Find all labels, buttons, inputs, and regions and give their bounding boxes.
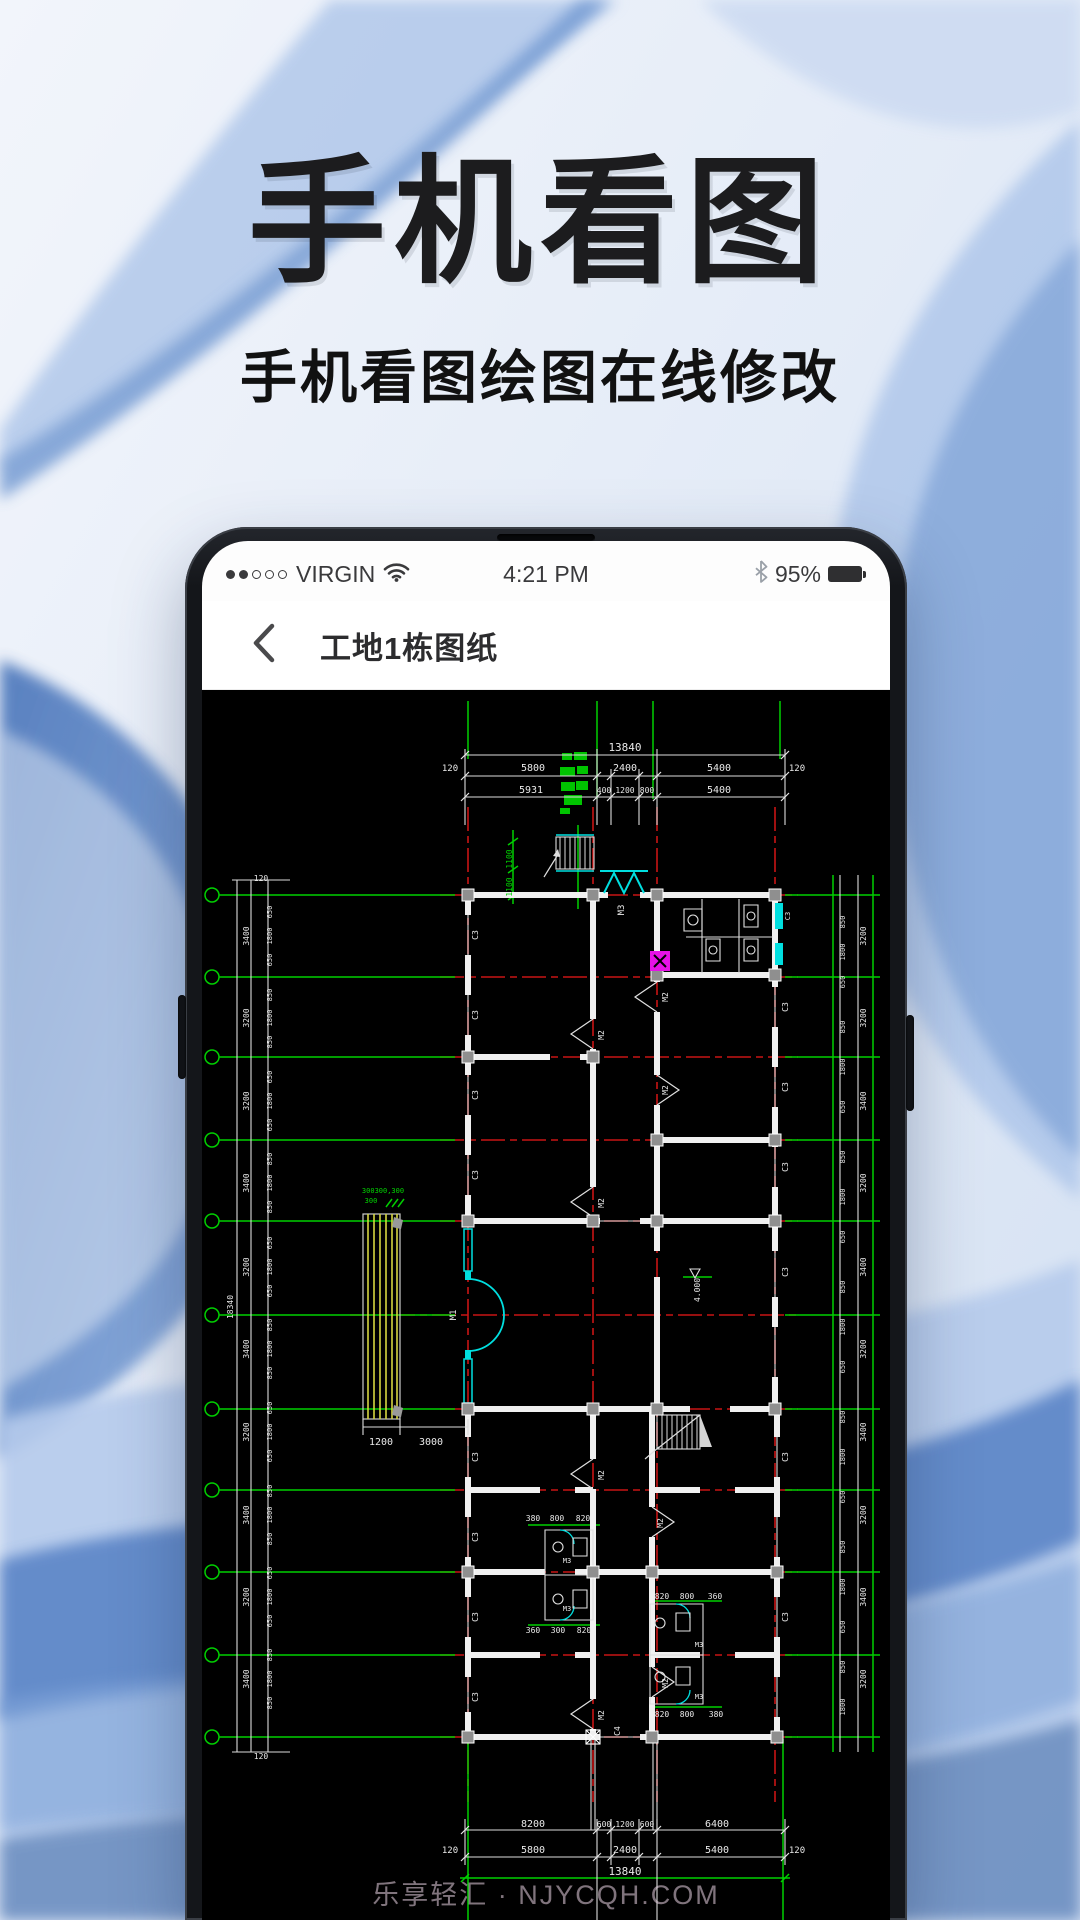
svg-text:650: 650 [266,1119,274,1132]
svg-text:3200: 3200 [242,1422,251,1441]
svg-text:850: 850 [839,1281,847,1294]
page-title: 手机看图 [0,110,1080,310]
svg-text:1200: 1200 [615,1820,634,1829]
svg-text:M2: M2 [597,1470,606,1480]
svg-text:1200: 1200 [369,1437,393,1448]
svg-text:300: 300 [551,1626,566,1635]
svg-text:M3: M3 [617,905,627,916]
svg-text:650: 650 [266,1402,274,1415]
svg-text:C3: C3 [781,1612,790,1622]
svg-text:1800: 1800 [266,1175,274,1192]
svg-text:650: 650 [266,1450,274,1463]
phone-power-button [906,1015,914,1111]
svg-text:1100: 1100 [505,877,514,896]
svg-text:120: 120 [442,1846,458,1856]
svg-text:M1: M1 [449,1310,459,1321]
svg-text:850: 850 [839,916,847,929]
svg-text:3200: 3200 [859,1339,868,1358]
svg-text:3200: 3200 [859,1505,868,1524]
axis-grid-red [350,807,798,1802]
back-chevron-icon [252,623,276,668]
svg-text:120: 120 [442,764,458,774]
svg-text:850: 850 [266,1367,274,1380]
svg-text:600: 600 [640,1820,655,1829]
svg-text:3200: 3200 [242,1257,251,1276]
svg-text:360: 360 [526,1626,541,1635]
svg-text:850: 850 [839,1151,847,1164]
svg-text:650: 650 [839,1621,847,1634]
back-button[interactable] [242,623,286,667]
svg-text:120: 120 [254,1752,269,1761]
svg-text:3400: 3400 [859,1257,868,1276]
svg-text:C3: C3 [784,912,792,920]
svg-text:5800: 5800 [521,763,545,774]
svg-text:1800: 1800 [266,1010,274,1027]
svg-text:1200: 1200 [615,786,634,795]
svg-text:850: 850 [266,1649,274,1662]
svg-text:120: 120 [789,764,805,774]
svg-text:M2: M2 [597,1710,606,1720]
svg-text:850: 850 [266,1697,274,1710]
svg-text:2400: 2400 [613,763,637,774]
svg-text:C3: C3 [781,1162,790,1172]
svg-text:850: 850 [266,1036,274,1049]
svg-text:650: 650 [266,1237,274,1250]
svg-text:850: 850 [839,1661,847,1674]
svg-text:820: 820 [576,1514,591,1523]
svg-text:M2: M2 [597,1030,606,1040]
svg-text:3400: 3400 [242,1669,251,1688]
svg-text:800: 800 [550,1514,565,1523]
cad-viewer-canvas[interactable]: 1384012058002400540012059314001200800540… [202,690,890,1920]
svg-text:3000: 3000 [419,1437,443,1448]
svg-text:650: 650 [266,906,274,919]
svg-text:850: 850 [839,1541,847,1554]
svg-text:850: 850 [266,1201,274,1214]
svg-text:1800: 1800 [266,1259,274,1276]
svg-text:3200: 3200 [859,1008,868,1027]
svg-text:800: 800 [640,786,655,795]
green-annotation-blocks [560,752,588,814]
svg-text:5800: 5800 [521,1845,545,1856]
svg-text:3200: 3200 [242,1008,251,1027]
stairs-upper [544,835,594,877]
svg-text:13840: 13840 [608,741,641,754]
svg-text:800: 800 [680,1592,695,1601]
svg-text:650: 650 [266,1567,274,1580]
columns [462,889,783,1743]
magenta-symbol [650,951,670,971]
svg-text:M2: M2 [661,1678,670,1688]
svg-text:C3: C3 [471,1692,480,1702]
svg-text:850: 850 [266,1153,274,1166]
battery-icon [828,566,866,582]
svg-text:3400: 3400 [242,1173,251,1192]
svg-text:820: 820 [577,1626,592,1635]
svg-text:4.000: 4.000 [693,1278,702,1302]
svg-text:1800: 1800 [266,928,274,945]
svg-text:1800: 1800 [839,1189,847,1206]
svg-text:380: 380 [709,1710,724,1719]
svg-text:1100: 1100 [505,849,514,868]
battery-percent-label: 95% [775,561,821,588]
cad-dimension-texts: 1384012058002400540012059314001200800540… [226,741,868,1878]
svg-text:1800: 1800 [839,1449,847,1466]
dimension-ticks [461,751,789,1861]
svg-text:3200: 3200 [859,1173,868,1192]
svg-text:1800: 1800 [266,1341,274,1358]
svg-text:8200: 8200 [521,1819,545,1830]
svg-text:1800: 1800 [266,1093,274,1110]
svg-text:M3: M3 [695,1693,703,1701]
svg-text:M2: M2 [656,1518,665,1528]
svg-text:C4: C4 [613,1726,622,1736]
svg-text:5400: 5400 [705,1845,729,1856]
svg-text:3200: 3200 [242,1091,251,1110]
svg-text:C3: C3 [781,1267,790,1277]
svg-text:C3: C3 [781,1452,790,1462]
svg-text:1800: 1800 [266,1589,274,1606]
svg-text:5400: 5400 [707,785,731,796]
svg-text:1800: 1800 [839,1579,847,1596]
phone-mockup: VIRGIN 4:21 PM 95% [185,527,907,1920]
svg-text:C3: C3 [471,1170,480,1180]
svg-text:C3: C3 [471,1532,480,1542]
svg-text:M2: M2 [661,1085,670,1095]
svg-text:M3: M3 [563,1557,571,1565]
phone-screen: VIRGIN 4:21 PM 95% [202,541,890,1920]
svg-text:850: 850 [266,1533,274,1546]
svg-text:300: 300 [365,1197,378,1205]
svg-text:5931: 5931 [519,785,543,796]
svg-text:3200: 3200 [859,1669,868,1688]
svg-text:850: 850 [839,1411,847,1424]
svg-text:5400: 5400 [707,763,731,774]
phone-volume-button [178,995,186,1079]
svg-text:3400: 3400 [242,1339,251,1358]
svg-text:6400: 6400 [705,1819,729,1830]
svg-text:800: 800 [680,1710,695,1719]
svg-text:18340: 18340 [226,1295,235,1319]
svg-text:C3: C3 [781,1002,790,1012]
svg-text:650: 650 [839,1491,847,1504]
svg-text:850: 850 [266,1319,274,1332]
svg-text:3200: 3200 [859,926,868,945]
drawing-title: 工地1栋图纸 [320,623,498,668]
status-bar: VIRGIN 4:21 PM 95% [202,541,890,601]
svg-text:1800: 1800 [266,1671,274,1688]
svg-text:C3: C3 [471,1010,480,1020]
svg-text:3400: 3400 [859,1587,868,1606]
ramp-hatch [363,1214,403,1419]
watermark: 乐享轻汇 · NJYCQH.COM [202,1873,890,1912]
svg-text:3400: 3400 [242,1505,251,1524]
cad-svg: 1384012058002400540012059314001200800540… [202,690,890,1920]
svg-text:820: 820 [655,1592,670,1601]
svg-text:M3: M3 [695,1641,703,1649]
svg-text:650: 650 [839,1101,847,1114]
svg-text:650: 650 [839,1231,847,1244]
svg-text:2400: 2400 [613,1845,637,1856]
svg-text:1800: 1800 [839,1319,847,1336]
svg-text:850: 850 [839,1021,847,1034]
svg-text:650: 650 [266,1615,274,1628]
svg-text:M3: M3 [563,1605,571,1613]
svg-text:1800: 1800 [839,1059,847,1076]
page-subtitle: 手机看图绘图在线修改 [0,332,1080,414]
walls [468,895,777,1739]
svg-text:600: 600 [597,1820,612,1829]
svg-text:400: 400 [597,786,612,795]
svg-text:C3: C3 [471,1612,480,1622]
svg-text:1800: 1800 [266,1507,274,1524]
svg-text:650: 650 [839,1361,847,1374]
thin-linework [232,749,858,1920]
svg-text:C3: C3 [471,930,480,940]
svg-text:C3: C3 [471,1090,480,1100]
svg-text:C3: C3 [781,1082,790,1092]
svg-text:650: 650 [266,1285,274,1298]
svg-text:300300,300: 300300,300 [362,1187,404,1195]
svg-text:380: 380 [526,1514,541,1523]
svg-text:3400: 3400 [859,1422,868,1441]
svg-text:3200: 3200 [242,1587,251,1606]
svg-text:850: 850 [266,1485,274,1498]
svg-text:650: 650 [266,1071,274,1084]
svg-text:1800: 1800 [839,1699,847,1716]
svg-text:1800: 1800 [839,944,847,961]
svg-text:820: 820 [655,1710,670,1719]
svg-text:360: 360 [708,1592,723,1601]
nav-bar: 工地1栋图纸 [202,601,890,690]
svg-text:120: 120 [789,1846,805,1856]
svg-text:1800: 1800 [266,1424,274,1441]
svg-text:650: 650 [266,954,274,967]
svg-text:650: 650 [839,976,847,989]
svg-text:3400: 3400 [242,926,251,945]
svg-text:M2: M2 [597,1198,606,1208]
stairs-lower [645,1415,712,1459]
svg-text:120: 120 [254,874,269,883]
svg-text:3400: 3400 [859,1091,868,1110]
svg-text:M2: M2 [661,992,670,1002]
cyan-windows-doors [464,871,783,1704]
svg-text:C3: C3 [471,1452,480,1462]
bluetooth-icon [754,560,768,589]
svg-text:850: 850 [266,989,274,1002]
